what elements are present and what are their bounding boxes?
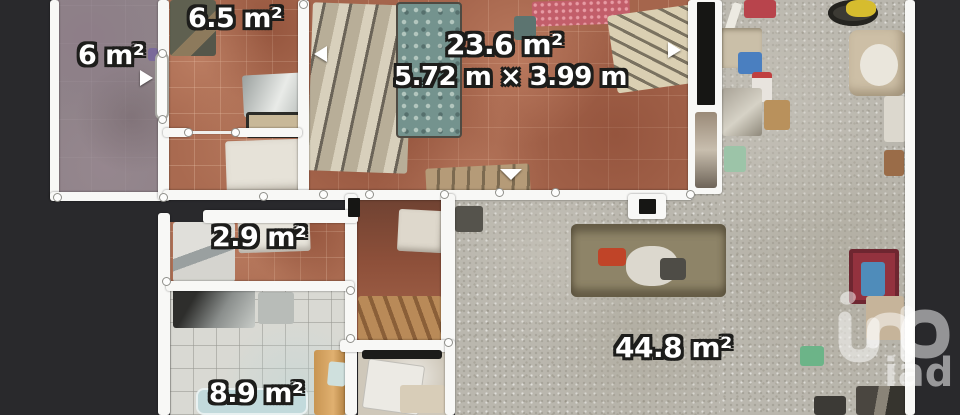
wall-node (159, 193, 168, 202)
room-6-5-area-label: 6.5 m² (188, 3, 282, 34)
wall-node (346, 334, 355, 343)
stove-appliance (173, 288, 255, 328)
room-8-9-area-label: 8.9 m² (209, 378, 303, 409)
wall-hall-left (345, 194, 357, 415)
wall-room6-left (50, 0, 59, 200)
wall-node (231, 128, 240, 137)
dark-item-on-sofa (660, 258, 686, 280)
wall-node (365, 190, 374, 199)
gray-appliance (258, 292, 294, 324)
wall-node (259, 192, 268, 201)
door-leaf (155, 52, 169, 120)
wall-room6-bottom (50, 192, 170, 201)
nav-arrow-right-icon[interactable] (140, 70, 153, 86)
nav-arrow-right2-icon[interactable] (668, 42, 681, 58)
nav-arrow-down-icon[interactable] (500, 169, 522, 180)
bottom-room-dark-edge (362, 350, 442, 359)
blue-item (738, 52, 762, 74)
white-table (225, 139, 307, 194)
wall-room29-left (158, 213, 170, 415)
room-6-area-label: 6 m² (78, 40, 144, 71)
door-marker-garage (639, 199, 656, 214)
iad-watermark: iad (834, 288, 960, 415)
room-23-6-area-label: 23.6 m² (446, 28, 563, 61)
wall-node (319, 190, 328, 199)
dark-mat (455, 206, 483, 232)
wall-room65-bottom-b (236, 128, 302, 137)
wall-hall-right (441, 194, 455, 346)
wall-room65-right (298, 0, 309, 192)
hall-white-item (397, 209, 445, 253)
cardboard-box (764, 100, 790, 130)
wall-node (495, 188, 504, 197)
wall-node (440, 190, 449, 199)
wall-niche-object (695, 112, 717, 188)
wall-node (299, 0, 308, 9)
door-marker-hall (348, 198, 360, 217)
wall-node (551, 188, 560, 197)
hall-wood-clutter (358, 296, 442, 340)
green-item (800, 346, 824, 366)
orange-item (598, 248, 626, 266)
wall-node (184, 128, 193, 137)
door-marker-living-right (697, 2, 715, 105)
room-44-8-area-label: 44.8 m² (615, 331, 732, 364)
wall-room29-room89-divider (166, 281, 354, 291)
wall-node (444, 338, 453, 347)
yellow-toy (846, 0, 876, 17)
beige-clutter (400, 385, 445, 413)
wall-bottom-room-right (445, 340, 455, 415)
wall-node (53, 193, 62, 202)
white-bags (884, 96, 906, 142)
wall-node (686, 190, 695, 199)
open-door-line-room65 (190, 131, 236, 134)
wall-node (162, 277, 171, 286)
wall-living-bottom (163, 190, 693, 200)
nav-arrow-left-icon[interactable] (314, 46, 327, 62)
room-2-9-area-label: 2.9 m² (212, 222, 306, 253)
armchair-cushion (860, 44, 898, 86)
red-cloth (744, 0, 776, 18)
gray-clutter (722, 88, 762, 136)
pale-green-item (724, 146, 746, 172)
floorplan-viewer: 6 m² 6.5 m² 23.6 m² 5.72 m × 3.99 m 2.9 … (0, 0, 960, 415)
room-6-floor[interactable] (57, 0, 163, 196)
wall-node (158, 49, 167, 58)
wall-node (158, 115, 167, 124)
wall-node (346, 286, 355, 295)
mirror-item (242, 72, 304, 117)
iad-brand-text: iad (884, 350, 953, 396)
small-teal-item (327, 361, 347, 386)
room-23-6-dimensions-label: 5.72 m × 3.99 m (394, 62, 627, 92)
brown-item (884, 150, 904, 176)
